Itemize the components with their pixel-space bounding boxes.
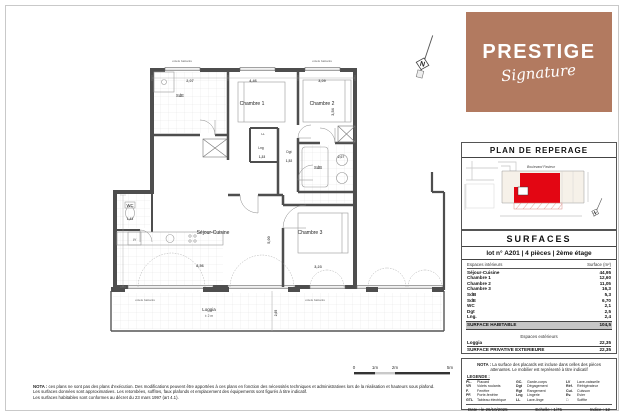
tiled-floors xyxy=(113,72,442,329)
plan-de-reperage-box: PLAN DE REPERAGE Boulevard Pasteur N xyxy=(461,142,617,230)
legende-label: LEGENDE : xyxy=(467,374,612,379)
room-label-wc: WC xyxy=(127,203,134,208)
date-label: Date : le 26/10/2025 xyxy=(468,407,508,412)
dim-sdb: 2,07 xyxy=(338,155,345,159)
map-street-label: Boulevard Pasteur xyxy=(527,165,556,169)
indice-label: Indice : 12 xyxy=(590,407,610,412)
surface-row: Lng.2,4 xyxy=(467,314,611,320)
legend-col-2: GC.Garde-corps DgtDégagement RgtRangemen… xyxy=(516,380,562,402)
legend-col-1: PL.Placard VRVolets roulants F.Fenêtre P… xyxy=(466,380,512,402)
room-label-lng: Lng xyxy=(258,146,264,150)
brand-logo: PRESTIGE Signature xyxy=(466,12,612,112)
legend-abbr: LL xyxy=(516,398,527,402)
surfaces-title: SURFACES xyxy=(462,231,616,247)
room-label-sejour: Séjour-Cuisine xyxy=(197,230,230,236)
dim-sejour-w: 8,56 xyxy=(196,264,203,268)
surface-ext-total-label: SURFACE PRIVATIVE EXTERIEURE xyxy=(467,347,544,353)
room-label-chambre2: Chambre 2 xyxy=(310,101,335,107)
room-label-sde: SdE xyxy=(176,93,184,98)
dim-sejour-h: 5,00 xyxy=(267,236,271,243)
dim-ch2: 3,09 xyxy=(318,79,325,83)
dim-ch3: 3,23 xyxy=(314,265,321,269)
north-arrow-icon: N xyxy=(413,33,436,79)
room-label-sdb: SdB xyxy=(314,165,322,170)
legend-nota: NOTA : La surface des placards est inclu… xyxy=(466,361,612,374)
dim-sde: 2,07 xyxy=(186,79,193,83)
map-north-arrow-icon: N xyxy=(590,197,603,218)
surface-privative-row: SURFACE PRIVATIVE EXTERIEURE 22,35 xyxy=(467,346,611,353)
legend-col-3: LVLave-vaisselle Réf.Réfrigérateur Cui.C… xyxy=(566,380,612,402)
volets-label: volets battants xyxy=(172,59,192,63)
dim-ch1: 4,46 xyxy=(249,79,256,83)
nota-main-line1: ces plans ne sont pas des plans d'exécut… xyxy=(49,384,435,389)
legend-grid: PL.Placard VRVolets roulants F.Fenêtre P… xyxy=(466,380,612,402)
legend-box: NOTA : La surface des placards est inclu… xyxy=(461,358,617,410)
legend-item: LLLave-linge xyxy=(516,398,562,402)
titleblock-bottom-row: Date : le 26/10/2025 Echelle : 1/75 Indi… xyxy=(466,404,612,412)
volets-label: volets battants xyxy=(135,298,155,302)
room-label-chambre3: Chambre 3 xyxy=(298,230,323,236)
volets-label: volets battants xyxy=(305,298,325,302)
surfaces-box: SURFACES lot n° A201 | 4 pièces | 2ème é… xyxy=(461,230,617,354)
reperage-title: PLAN DE REPERAGE xyxy=(462,143,616,158)
room-label-ll: LL xyxy=(261,132,265,136)
room-label-lv: LV xyxy=(133,238,136,242)
surface-row-value: 2,4 xyxy=(605,314,611,320)
scale-bar: 0 1m 2m 5m xyxy=(353,365,454,374)
legend-abbr: GTL xyxy=(466,398,477,402)
surfaces-col-label: Espaces intérieurs xyxy=(467,262,502,268)
map-loggia-hatch xyxy=(514,203,562,209)
surfaces-col-value: Surface (m²) xyxy=(587,262,611,268)
room-label-dgt: Dgt xyxy=(286,150,291,154)
surface-total-value: 104,5 xyxy=(600,322,612,328)
surface-row-label: Lng. xyxy=(467,314,477,320)
lot-line: lot n° A201 | 4 pièces | 2ème étage xyxy=(462,247,616,260)
surface-row-value: 22,35 xyxy=(600,340,612,346)
dim-loggia: 2,65 xyxy=(274,310,278,317)
legend-nota-bold: NOTA : xyxy=(477,362,491,367)
surfaces-table: Espaces intérieurs Surface (m²) Séjour-C… xyxy=(462,260,616,353)
surfaces-header-row: Espaces intérieurs Surface (m²) xyxy=(467,262,611,269)
reperage-map: Boulevard Pasteur N xyxy=(462,158,616,228)
surface-row-label: Loggia xyxy=(467,340,482,346)
dim-dgt: 1,52 xyxy=(286,159,293,163)
nota-main: NOTA : ces plans ne sont pas des plans d… xyxy=(33,384,441,400)
legend-item: GTLTableau électrique xyxy=(466,398,512,402)
legend-label: Soffite xyxy=(577,398,587,402)
nota-main-line3: Les surfaces habitables sont conformes a… xyxy=(33,395,441,400)
legend-label: Lave-linge xyxy=(527,398,544,402)
floor-plan: SdE Chambre 1 Chambre 2 Lng LL Dgt SdB W… xyxy=(0,0,460,416)
brand-name: PRESTIGE xyxy=(482,42,595,62)
dim-ch2-h: 3,54 xyxy=(331,107,335,115)
echelle-label: Echelle : 1/75 xyxy=(535,407,562,412)
brand-signature: Signature xyxy=(501,61,577,85)
scale-1m: 1m xyxy=(372,365,379,370)
soffite-swatch-icon: □ xyxy=(566,398,577,402)
surface-row-loggia: Loggia 22,35 xyxy=(467,340,611,346)
legend-item-soffite: □Soffite xyxy=(566,398,612,402)
surface-habitable-row: SURFACE HABITABLE 104,5 xyxy=(466,321,612,330)
room-label-chambre1: Chambre 1 xyxy=(240,101,265,107)
nota-main-bold: NOTA : xyxy=(33,384,47,389)
dim-lng: 1,33 xyxy=(259,155,266,159)
scale-0: 0 xyxy=(353,365,356,370)
volets-label: volets battants xyxy=(312,59,332,63)
scale-5m: 5m xyxy=(447,365,454,370)
legend-nota-text: La surface des placards est incluse dans… xyxy=(490,362,601,372)
dim-wc: 1,43 xyxy=(127,217,134,221)
scale-2m: 2m xyxy=(392,365,399,370)
espaces-exterieurs-header: Espaces extérieurs xyxy=(467,334,611,339)
room-label-loggia-sub: ± 2 m xyxy=(205,314,213,318)
room-label-loggia: Loggia xyxy=(202,307,216,312)
surface-total-label: SURFACE HABITABLE xyxy=(467,322,516,328)
legend-label: Tableau électrique xyxy=(477,398,506,402)
map-stairwell xyxy=(518,187,528,195)
surface-ext-total-value: 22,35 xyxy=(600,347,612,353)
